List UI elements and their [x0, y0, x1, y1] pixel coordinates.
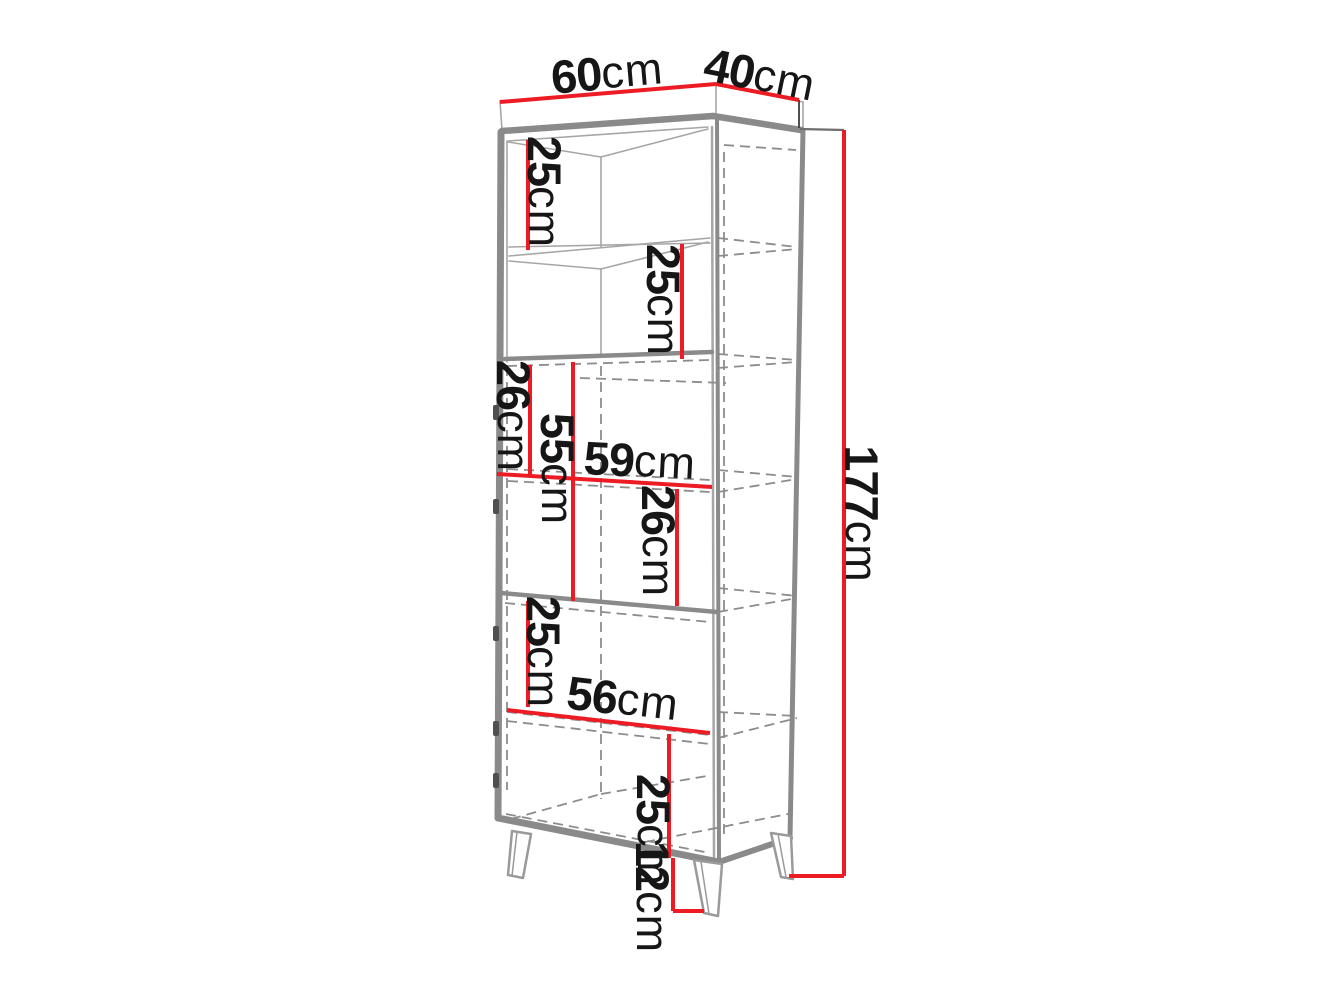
shelf3-ext-top	[718, 470, 797, 477]
furniture-dimension-diagram: 60cm 40cm 177cm 25cm 25cm 26cm 55cm 59cm…	[0, 0, 1329, 997]
label-top-depth: 40cm	[700, 37, 821, 111]
dimension-labels: 60cm 40cm 177cm 25cm 25cm 26cm 55cm 59cm…	[488, 37, 889, 953]
shelf1-ext-top	[718, 238, 797, 247]
shelf4-ext-top	[718, 588, 797, 596]
label-lower-inner-width: 56cm	[564, 665, 682, 730]
hinge-icon	[493, 773, 499, 788]
shelf5-ext-bottom	[718, 718, 797, 738]
label-comp4-height: 26cm	[633, 485, 686, 597]
hinge-icon	[493, 721, 499, 736]
shelf5-ext-top	[718, 712, 797, 716]
shelf4-ext-bottom	[718, 598, 797, 612]
label-total-height: 177cm	[836, 445, 889, 582]
hinge-icon	[493, 626, 499, 641]
bookcase-drawing: 60cm 40cm 177cm 25cm 25cm 26cm 55cm 59cm…	[0, 0, 1329, 997]
shelf3-ext-bottom	[718, 479, 797, 492]
label-leg-height: 12cm	[627, 841, 680, 953]
floor-diagonal-left	[511, 794, 601, 819]
shelf5-hidden-bottom	[507, 721, 710, 744]
label-mid-section-height: 55cm	[532, 413, 585, 525]
label-mid-inner-width: 59cm	[583, 431, 698, 490]
front-right-inner-edge	[712, 127, 714, 858]
front-right-corner-edge	[717, 116, 719, 861]
top-back-hidden-edge	[724, 145, 796, 150]
label-top-width: 60cm	[549, 41, 665, 104]
top-right-edge	[713, 116, 801, 130]
label-comp5-height: 25cm	[518, 596, 571, 708]
label-comp1-height: 25cm	[519, 136, 572, 248]
hinge-icon	[493, 499, 499, 514]
comp2-back-top-left	[509, 261, 601, 269]
shelf2-ext-bottom	[718, 362, 797, 368]
shelf2-ext-top	[718, 354, 797, 360]
back-right-edge	[790, 130, 803, 838]
front-left-leg	[508, 831, 531, 878]
top-panel-left-end	[500, 101, 502, 130]
height-line-top-connector	[800, 129, 844, 130]
door-top-hidden-edge	[580, 378, 726, 383]
shelf1-ext-bottom	[718, 249, 797, 256]
label-comp2-height: 25cm	[638, 244, 691, 356]
